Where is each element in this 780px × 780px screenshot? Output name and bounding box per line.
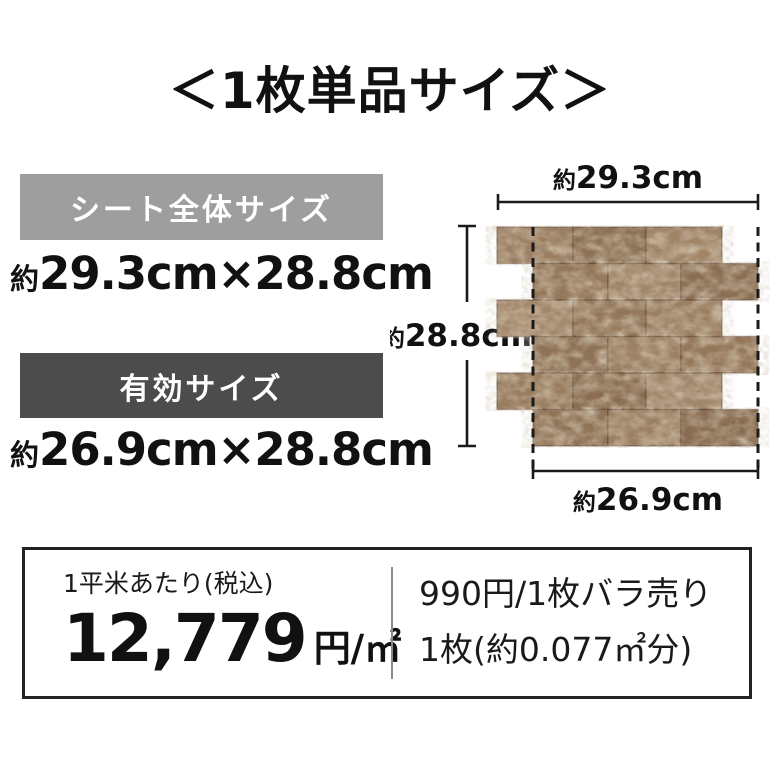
- approx-prefix: 約: [10, 262, 39, 296]
- tile-texture-overlay: [533, 410, 758, 447]
- tile-texture-overlay: [497, 300, 722, 337]
- tile-texture-overlay: [533, 337, 758, 374]
- sheet-size-banner-label: シート全体サイズ: [70, 185, 333, 229]
- price-per-sqm-caption: 1平米あたり(税込): [63, 568, 391, 600]
- sheet-size-banner: シート全体サイズ: [20, 174, 383, 240]
- effective-width-dimension-label: 約26.9cm: [573, 482, 723, 518]
- price-per-piece-line1: 990円/1枚バラ売り: [419, 566, 749, 622]
- width-dimension-line: [498, 194, 758, 210]
- tile-texture-overlay: [497, 373, 722, 410]
- price-per-sqm-cell: 1平米あたり(税込) 12,779 円/㎡: [25, 550, 391, 696]
- price-per-piece-line2: 1枚(約0.077㎡分): [419, 622, 749, 678]
- price-per-sqm-unit: 円/㎡: [314, 618, 402, 672]
- effective-size-dimensions: 26.9cm×28.8cm: [39, 423, 433, 476]
- sheet-size-dimensions: 29.3cm×28.8cm: [39, 247, 433, 300]
- tile-texture-overlay: [533, 264, 758, 301]
- effective-width-dimension-line: [533, 463, 758, 479]
- approx-prefix: 約: [10, 438, 39, 472]
- price-per-sqm-amount: 12,779: [63, 602, 306, 676]
- price-per-piece-cell: 990円/1枚バラ売り 1枚(約0.077㎡分): [393, 550, 749, 696]
- price-box: 1平米あたり(税込) 12,779 円/㎡ 990円/1枚バラ売り 1枚(約0.…: [22, 547, 752, 699]
- effective-size-banner-label: 有効サイズ: [119, 364, 283, 408]
- effective-size-value: 約26.9cm×28.8cm: [10, 424, 393, 486]
- price-per-sqm-amount-row: 12,779 円/㎡: [63, 602, 391, 676]
- tile-texture-overlay: [497, 227, 722, 264]
- effective-size-banner: 有効サイズ: [20, 353, 383, 418]
- tile-sheet-diagram: 約29.3cm 約28.8cm 約26.9cm: [390, 150, 780, 530]
- width-dimension-label: 約29.3cm: [553, 160, 703, 196]
- sheet-size-value: 約29.3cm×28.8cm: [10, 248, 393, 310]
- tile-sheet-photo: [497, 227, 758, 446]
- page-title: ＜1枚単品サイズ＞: [0, 58, 780, 124]
